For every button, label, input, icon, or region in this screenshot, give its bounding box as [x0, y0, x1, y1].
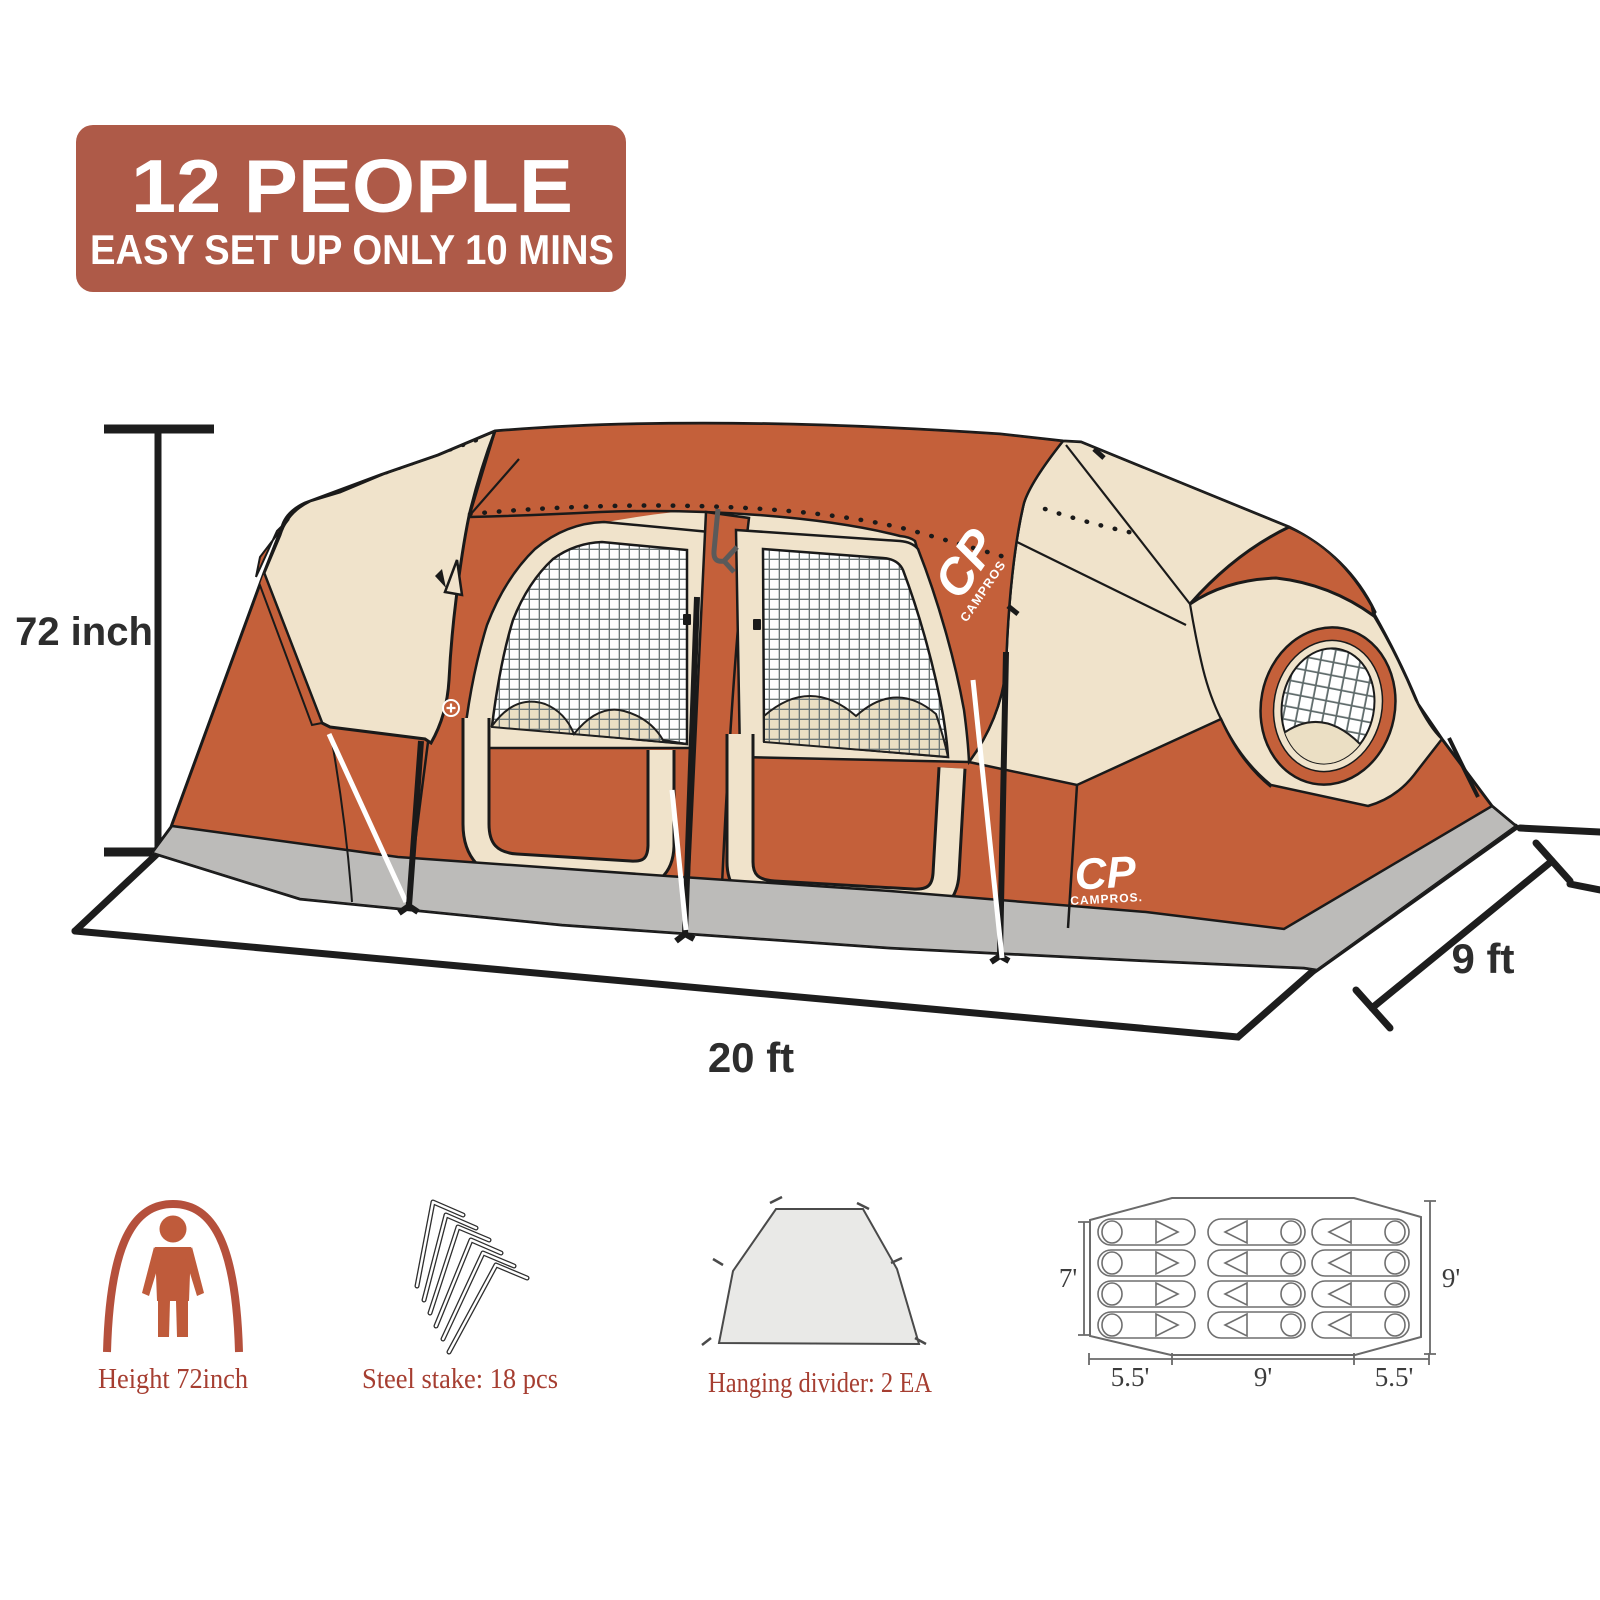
svg-text:9': 9'	[1254, 1362, 1272, 1392]
svg-text:12 PEOPLE: 12 PEOPLE	[131, 144, 573, 228]
svg-text:72 inch: 72 inch	[15, 610, 153, 654]
svg-text:5.5': 5.5'	[1111, 1362, 1150, 1392]
svg-text:EASY SET UP ONLY 10 MINS: EASY SET UP ONLY 10 MINS	[90, 226, 614, 273]
svg-text:Steel stake: 18 pcs: Steel stake: 18 pcs	[362, 1363, 558, 1395]
svg-text:9': 9'	[1442, 1263, 1460, 1293]
svg-text:5.5': 5.5'	[1375, 1362, 1414, 1392]
svg-text:20 ft: 20 ft	[708, 1034, 794, 1081]
svg-text:9 ft: 9 ft	[1452, 935, 1515, 982]
svg-text:7': 7'	[1059, 1263, 1077, 1293]
svg-text:Height 72inch: Height 72inch	[98, 1363, 248, 1395]
svg-text:Hanging divider: 2 EA: Hanging divider: 2 EA	[708, 1367, 932, 1399]
